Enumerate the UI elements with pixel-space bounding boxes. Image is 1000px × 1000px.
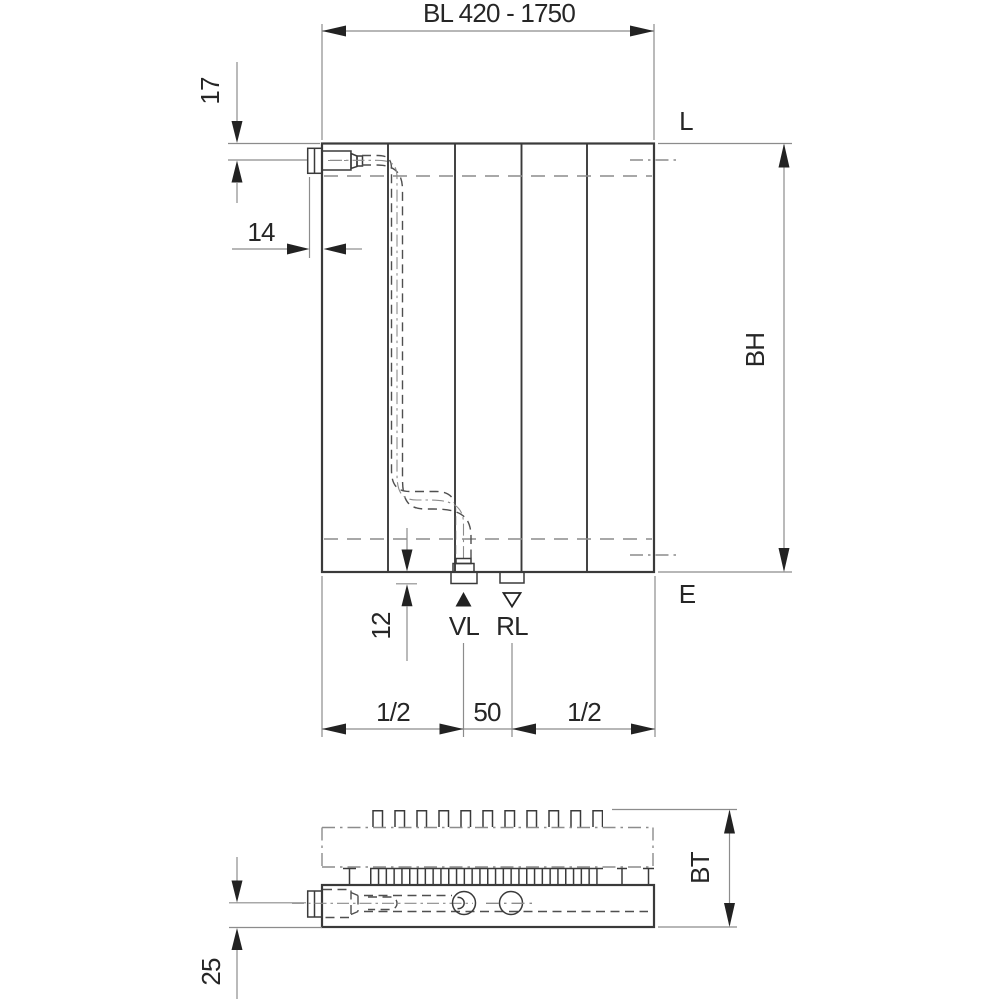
- bottom-connections: VL RL: [449, 559, 528, 642]
- bottom-view: BT 25: [196, 810, 737, 1000]
- arrowhead-up: [232, 161, 243, 183]
- dim-connection-offset-value: 25: [196, 958, 226, 986]
- pipe-wall-line: [362, 156, 456, 559]
- arrowhead-left: [322, 724, 346, 735]
- dim-top-offset-value: 17: [195, 77, 225, 105]
- front-panel: [322, 885, 654, 927]
- dimension-overall-length: BL 420 - 1750: [322, 0, 654, 140]
- arrowhead-up: [779, 144, 790, 168]
- arrowhead-left: [322, 26, 346, 37]
- valve-neck-taper: [351, 154, 357, 169]
- supply-stub: [451, 572, 477, 584]
- comb-teeth: [370, 869, 603, 886]
- dim-half-right-value: 1/2: [567, 697, 601, 727]
- supply-flow-triangle: [456, 592, 472, 607]
- dim-bottom-offset-value: 12: [366, 612, 396, 640]
- label-return: RL: [496, 611, 528, 641]
- arrowhead-right: [630, 26, 654, 37]
- arrowhead-down: [724, 903, 735, 927]
- label-air-vent: L: [679, 106, 693, 136]
- arrowhead-right: [440, 724, 464, 735]
- technical-drawing-canvas: BL 420 - 1750: [0, 0, 1000, 1000]
- dimension-bottom-offset: 12: [366, 528, 417, 661]
- arrowhead-down: [402, 550, 413, 572]
- front-view: BL 420 - 1750: [195, 0, 792, 737]
- dim-spacing-value: 50: [473, 697, 501, 727]
- internal-supply-pipe: [330, 156, 471, 562]
- arrowhead-left: [324, 244, 347, 255]
- arrowhead-left: [512, 724, 536, 735]
- arrowhead-down: [232, 881, 243, 903]
- radiator-body: [322, 144, 676, 573]
- dimension-height: BH: [658, 144, 792, 573]
- arrowhead-down: [232, 121, 243, 143]
- pipe-centerline: [330, 160, 464, 561]
- dim-depth-value: BT: [685, 851, 715, 884]
- arrowhead-down: [779, 548, 790, 572]
- radiator-dimension-drawing: BL 420 - 1750: [0, 0, 1000, 1000]
- dim-overall-length-value: BL 420 - 1750: [423, 0, 575, 28]
- label-supply: VL: [449, 611, 480, 641]
- dim-height-value: BH: [740, 333, 770, 368]
- label-drain: E: [679, 579, 696, 609]
- arrowhead-up: [402, 584, 413, 606]
- dimension-top-offset: 17: [195, 62, 320, 203]
- arrowhead-right: [287, 244, 310, 255]
- dim-half-left-value: 1/2: [376, 697, 410, 727]
- arrowhead-right: [631, 724, 655, 735]
- arrowhead-up: [724, 810, 735, 834]
- return-flow-triangle: [504, 593, 521, 607]
- valve-neck: [357, 156, 363, 166]
- dimension-connection-chain: 1/2 50 1/2: [322, 576, 655, 737]
- arrowhead-up: [232, 928, 243, 950]
- supply-fitting: [453, 564, 474, 573]
- dim-left-offset-value: 14: [247, 217, 275, 247]
- convector-fins-rear: [372, 810, 603, 827]
- dimension-connection-offset: 25: [196, 857, 322, 999]
- dimension-left-offset: 14: [232, 177, 362, 258]
- radiator-outline: [322, 144, 654, 573]
- rear-panel-phantom-outline: [322, 828, 653, 868]
- convector-fins-front: [343, 869, 654, 886]
- return-stub: [500, 572, 524, 583]
